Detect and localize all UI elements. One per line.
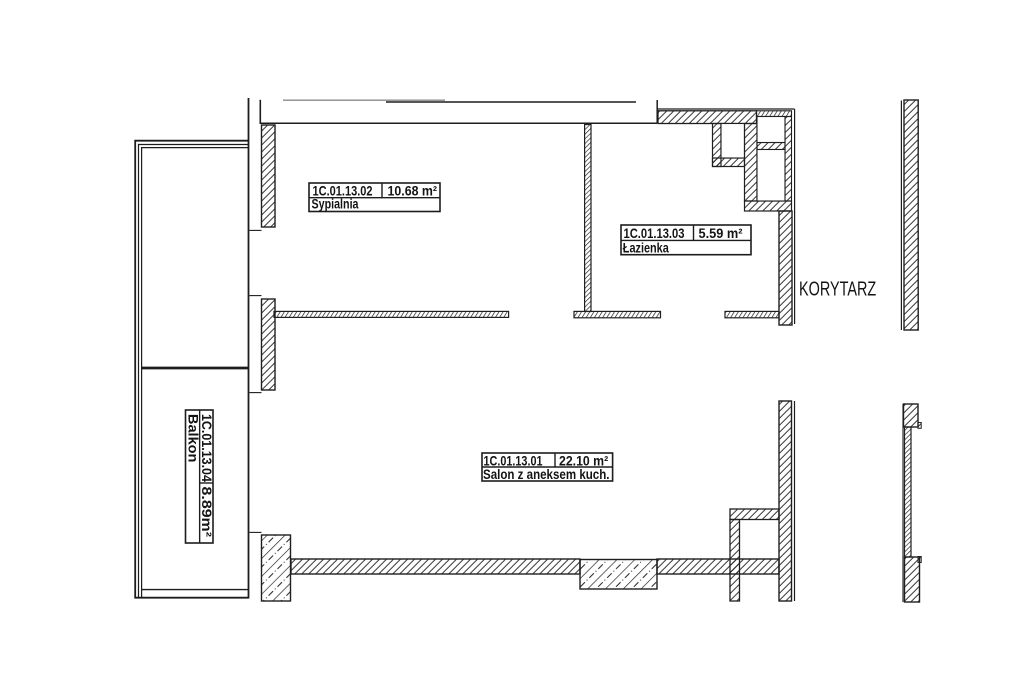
- svg-text:1C.01.13.03: 1C.01.13.03: [624, 226, 685, 241]
- svg-text:5.59 m²: 5.59 m²: [699, 226, 743, 241]
- svg-text:Salon z aneksem kuch.: Salon z aneksem kuch.: [483, 467, 610, 482]
- svg-text:8.89m²: 8.89m²: [199, 487, 214, 538]
- svg-text:10.68 m²: 10.68 m²: [388, 183, 438, 198]
- svg-text:Sypialnia: Sypialnia: [312, 197, 359, 212]
- svg-text:Łazienka: Łazienka: [623, 240, 669, 255]
- svg-text:Balkon: Balkon: [185, 414, 200, 463]
- svg-text:KORYTARZ: KORYTARZ: [799, 278, 876, 301]
